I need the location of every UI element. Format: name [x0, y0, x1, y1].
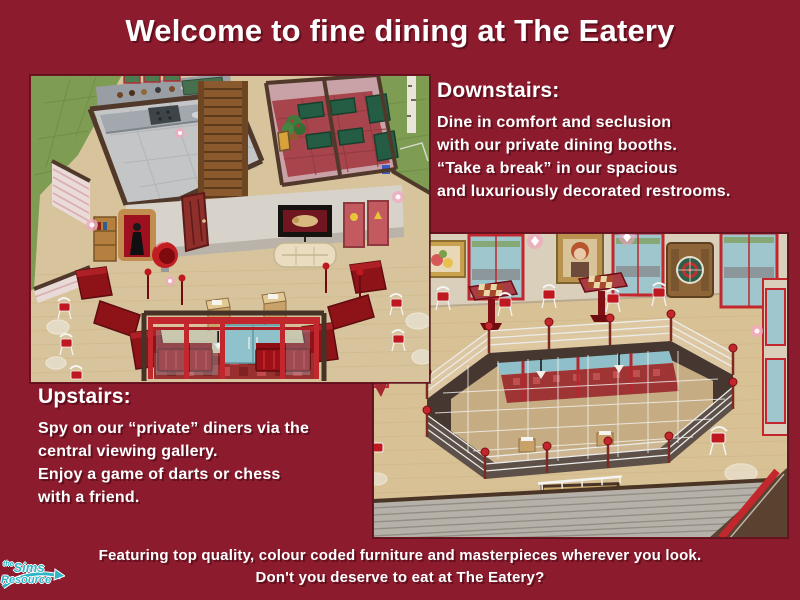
downstairs-line: and luxuriously decorated restrooms. — [437, 180, 731, 203]
display-alcove-mannequin — [118, 209, 156, 261]
sims-resource-logo: theSims Resource — [1, 561, 65, 599]
entry-vestibule — [144, 313, 324, 381]
downstairs-line: Dine in comfort and seclusion — [437, 111, 731, 134]
eatery-promo-page: { "title": "Welcome to fine dining at Th… — [0, 0, 800, 600]
birch-tree — [407, 75, 416, 133]
downstairs-screenshot — [30, 75, 430, 383]
upstairs-line: central viewing gallery. — [38, 440, 309, 463]
red-door — [182, 193, 208, 251]
upstairs-line: with a friend. — [38, 486, 309, 509]
downstairs-line: with our private dining booths. — [437, 134, 731, 157]
upstairs-line: Enjoy a game of darts or chess — [38, 463, 309, 486]
upstairs-line: Spy on our “private” diners via the — [38, 417, 309, 440]
downstairs-floorplan-image — [30, 75, 430, 383]
upstairs-screenshot — [373, 233, 788, 538]
wall-painting — [278, 131, 290, 151]
upstairs-heading: Upstairs: — [38, 384, 309, 410]
roast-painting — [278, 205, 332, 237]
footer-line: Don't you deserve to eat at The Eatery? — [0, 567, 800, 589]
portrait-painting — [557, 233, 603, 283]
gallery-back-wall — [373, 233, 788, 309]
downstairs-section: Downstairs: Dine in comfort and seclusio… — [437, 78, 731, 203]
downstairs-line: “Take a break” in our spacious — [437, 157, 731, 180]
logo-text-resource: Resource — [1, 575, 65, 586]
downstairs-heading: Downstairs: — [437, 78, 731, 104]
footer-line: Featuring top quality, colour coded furn… — [0, 545, 800, 567]
dartboard — [667, 243, 713, 297]
logo-text-sims: theSims — [3, 561, 65, 574]
logo-text-the: the — [3, 561, 14, 568]
upstairs-gallery-image — [373, 233, 788, 538]
private-dining-booths — [266, 75, 398, 185]
footer-tagline: Featuring top quality, colour coded furn… — [0, 545, 800, 589]
upstairs-section: Upstairs: Spy on our “private” diners vi… — [38, 384, 309, 509]
page-title: Welcome to fine dining at The Eatery — [0, 12, 800, 50]
